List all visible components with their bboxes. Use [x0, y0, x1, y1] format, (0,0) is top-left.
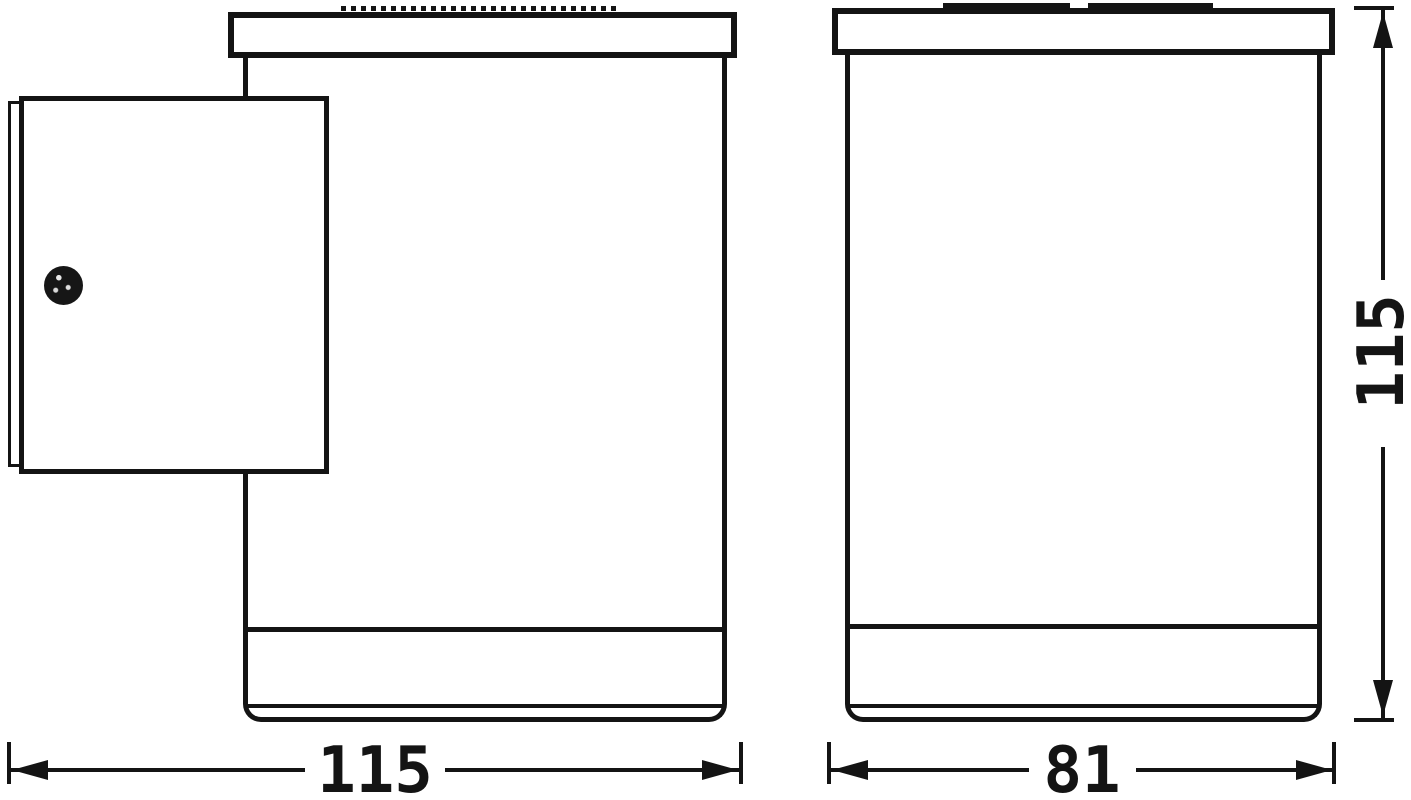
bottom-rim-line-side [247, 704, 723, 708]
lamp-body-front [845, 53, 1322, 722]
dimension-depth-label: 115 [317, 739, 433, 800]
dimension-depth-line-left [9, 768, 305, 772]
bottom-rim-line-front [849, 704, 1318, 708]
dimension-width-tick-right [1332, 742, 1336, 784]
dimension-depth-arrowhead-right [702, 760, 738, 780]
fixing-screw-icon [44, 266, 83, 305]
dimension-width-tick-left [827, 742, 831, 784]
cap-rib-front-right [1088, 3, 1213, 9]
cap-ribs-side [341, 6, 621, 11]
dimension-height-tick-bottom [1354, 718, 1394, 722]
lamp-cap-side [228, 12, 737, 58]
dimension-depth-arrowhead-left [12, 760, 48, 780]
dimension-height-arrowhead-down [1373, 680, 1393, 716]
dimension-drawing: 115 81 115 [0, 0, 1411, 800]
cap-rib-front-left [943, 3, 1070, 9]
dimension-width-arrowhead-right [1296, 760, 1332, 780]
dimension-width-label: 81 [1043, 739, 1120, 800]
diffuser-line-side [247, 627, 723, 632]
dimension-height-tick-top [1354, 6, 1394, 10]
dimension-height-line-top [1381, 10, 1385, 280]
dimension-depth-tick-right [739, 742, 743, 784]
diffuser-line-front [849, 624, 1318, 629]
dimension-height-arrowhead-up [1373, 12, 1393, 48]
dimension-depth-tick-left [7, 742, 11, 784]
dimension-height-line-bottom [1381, 447, 1385, 718]
lamp-cap-front [832, 8, 1335, 55]
dimension-height-label: 115 [1350, 294, 1411, 410]
dimension-depth-line-right [445, 768, 741, 772]
dimension-width-arrowhead-left [832, 760, 868, 780]
